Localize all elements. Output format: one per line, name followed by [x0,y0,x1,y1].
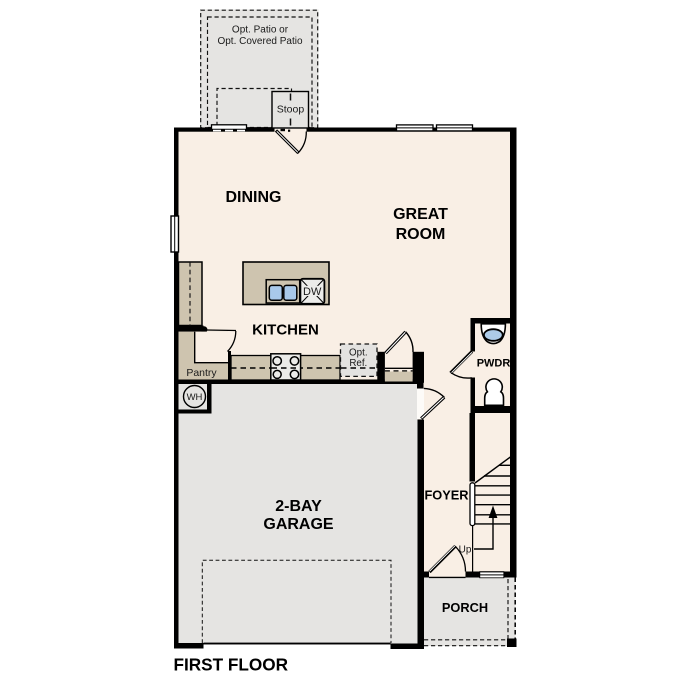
svg-text:DW: DW [303,286,322,298]
svg-text:WH: WH [187,392,203,403]
svg-text:Pantry: Pantry [186,367,217,379]
svg-text:FOYER: FOYER [424,488,468,503]
svg-text:PWDR: PWDR [477,358,511,370]
svg-text:DINING: DINING [226,189,282,206]
svg-text:GARAGE: GARAGE [263,516,334,533]
svg-text:GREAT: GREAT [393,206,448,223]
svg-text:2-BAY: 2-BAY [275,498,322,515]
svg-text:Opt.: Opt. [349,347,368,358]
svg-text:Stoop: Stoop [277,104,305,116]
svg-text:FIRST FLOOR: FIRST FLOOR [174,655,289,675]
svg-text:PORCH: PORCH [442,600,488,615]
svg-text:Opt. Patio or: Opt. Patio or [232,25,289,36]
svg-text:Opt. Covered Patio: Opt. Covered Patio [217,36,302,47]
svg-text:KITCHEN: KITCHEN [252,322,319,339]
svg-text:ROOM: ROOM [396,226,446,243]
